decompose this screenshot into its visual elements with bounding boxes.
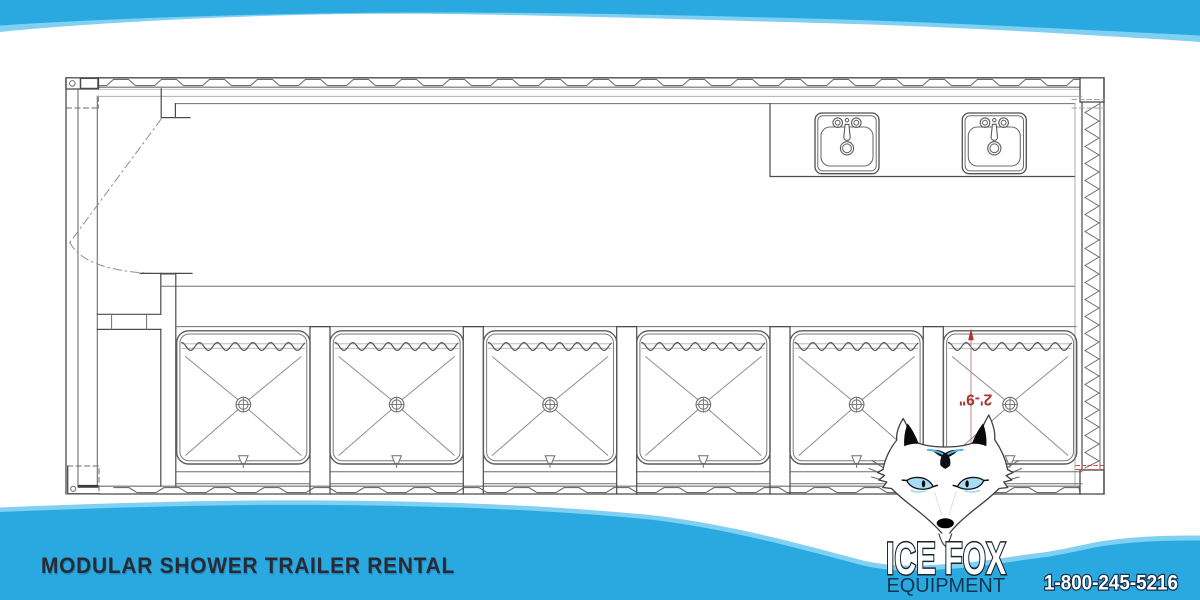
svg-text:1-800-245-5216: 1-800-245-5216 — [1044, 571, 1178, 595]
svg-text:EQUIPMENT: EQUIPMENT — [887, 574, 1006, 597]
svg-text:MODULAR SHOWER TRAILER RENTAL: MODULAR SHOWER TRAILER RENTAL — [41, 553, 455, 578]
svg-text:2'-9": 2'-9" — [959, 390, 992, 407]
